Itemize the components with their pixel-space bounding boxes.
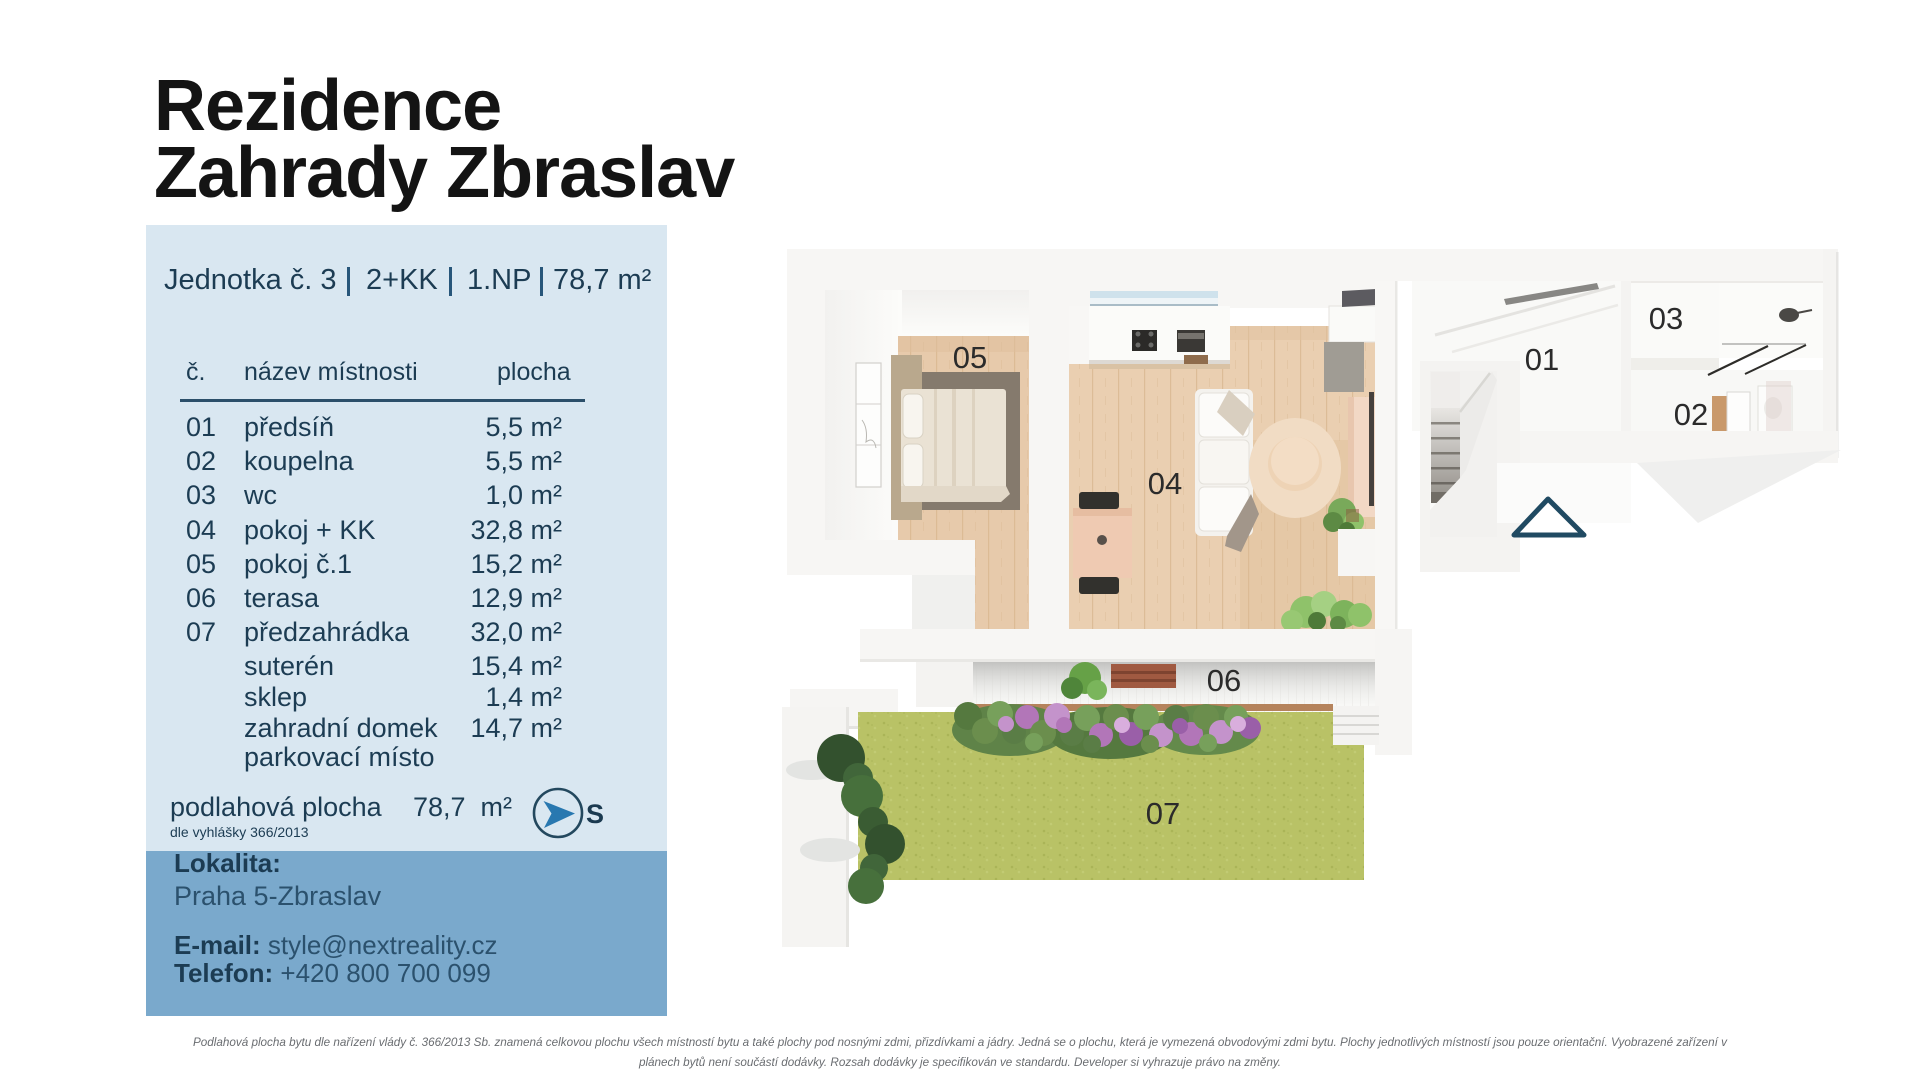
svg-text:03: 03 (1649, 301, 1683, 336)
svg-text:02: 02 (1674, 397, 1708, 432)
svg-text:06: 06 (1207, 663, 1241, 698)
svg-text:01: 01 (1525, 342, 1559, 377)
svg-text:05: 05 (953, 340, 987, 375)
svg-text:07: 07 (1146, 796, 1180, 831)
svg-text:04: 04 (1148, 466, 1182, 501)
